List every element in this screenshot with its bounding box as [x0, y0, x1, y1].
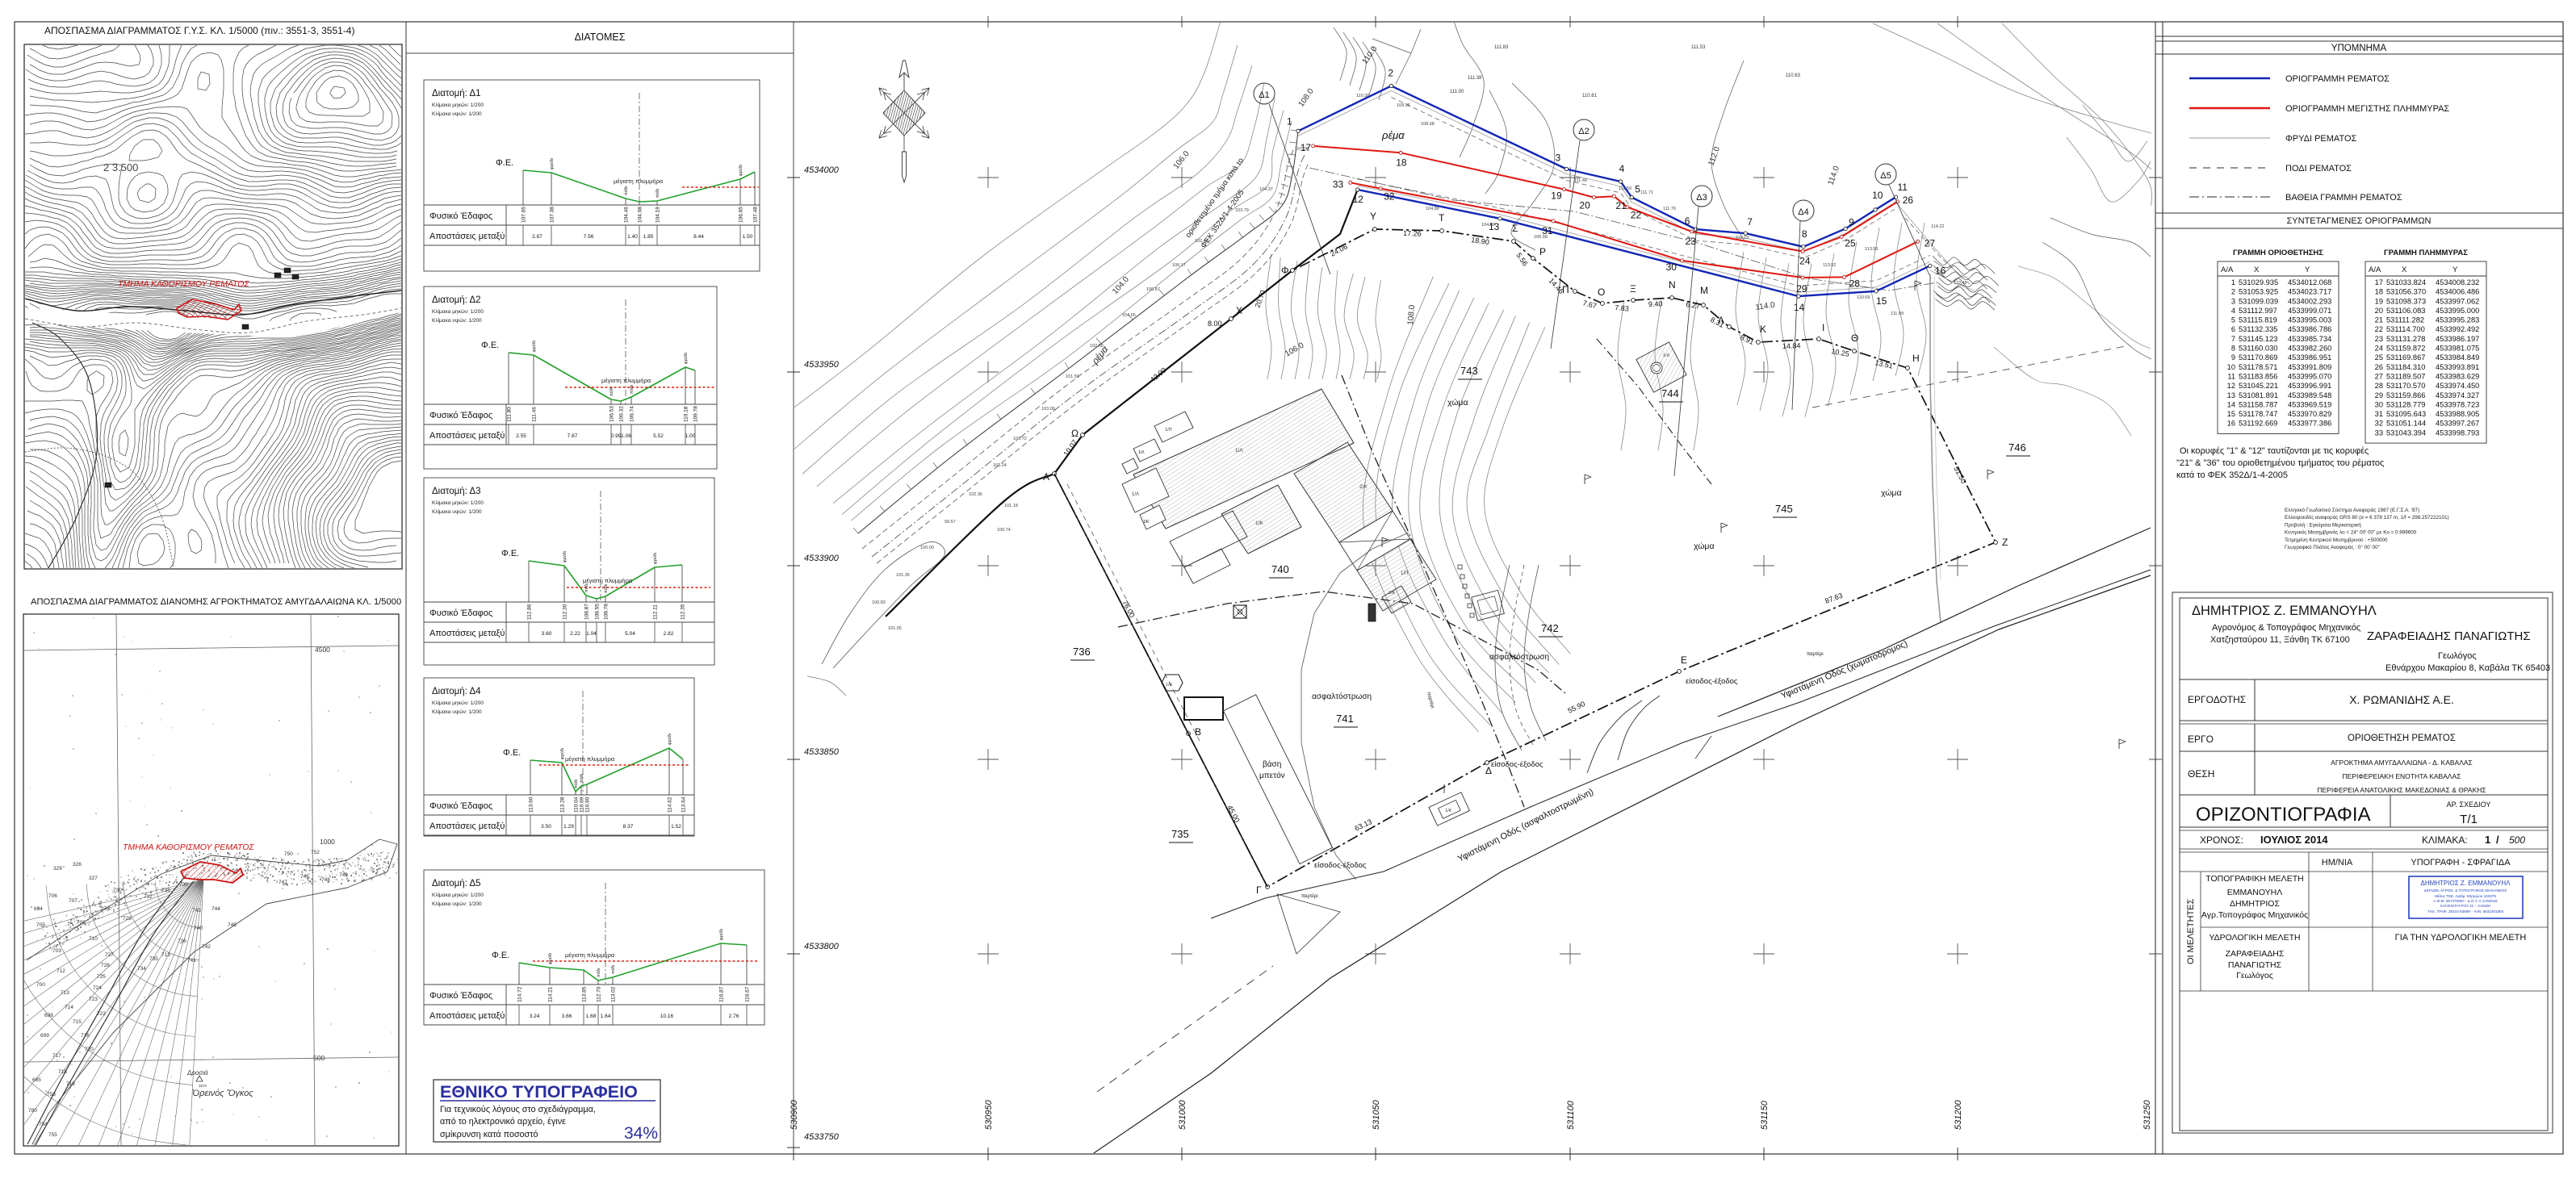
- svg-text:4533950: 4533950: [804, 360, 840, 370]
- svg-text:732: 732: [144, 894, 153, 900]
- svg-text:Κλίμακα μηκών: 1/200: Κλίμακα μηκών: 1/200: [432, 308, 484, 315]
- svg-text:1/Κ: 1/Κ: [1389, 591, 1396, 596]
- svg-text:ΓΙΑ ΤΗΝ ΥΔΡΟΛΟΓΙΚΗ ΜΕΛΕΤΗ: ΓΙΑ ΤΗΝ ΥΔΡΟΛΟΓΙΚΗ ΜΕΛΕΤΗ: [2395, 933, 2527, 943]
- svg-text:107.38: 107.38: [550, 207, 555, 223]
- svg-text:1.52: 1.52: [671, 824, 681, 830]
- svg-text:9: 9: [2231, 353, 2235, 362]
- svg-text:329: 329: [53, 866, 62, 872]
- svg-text:531183.856: 531183.856: [2239, 373, 2277, 381]
- svg-text:4533995.003: 4533995.003: [2288, 316, 2331, 324]
- svg-text:111.71: 111.71: [1640, 190, 1653, 195]
- svg-text:4: 4: [1619, 163, 1625, 174]
- svg-text:706: 706: [48, 893, 57, 899]
- svg-text:684: 684: [34, 906, 43, 912]
- svg-text:21: 21: [1615, 200, 1627, 211]
- svg-text:24: 24: [1799, 256, 1811, 267]
- svg-text:4533988.905: 4533988.905: [2436, 410, 2479, 418]
- svg-text:112.15: 112.15: [1736, 236, 1749, 240]
- svg-text:110.90: 110.90: [585, 796, 591, 813]
- svg-text:28: 28: [2375, 382, 2383, 390]
- svg-text:105.58: 105.58: [1534, 235, 1548, 240]
- svg-text:106.17: 106.17: [1172, 263, 1186, 268]
- svg-text:531114.700: 531114.700: [2386, 325, 2425, 333]
- svg-text:Αγρονόμος & Τοπογράφος Μηχανικ: Αγρονόμος & Τοπογράφος Μηχανικός: [2212, 623, 2360, 633]
- svg-text:531178.747: 531178.747: [2239, 410, 2277, 418]
- svg-text:713: 713: [161, 952, 170, 958]
- svg-text:2/Κ: 2/Κ: [1359, 484, 1368, 490]
- svg-text:Φυσικό Έδαφος: Φυσικό Έδαφος: [429, 211, 492, 221]
- svg-text:500: 500: [2509, 834, 2525, 846]
- svg-text:720: 720: [85, 1047, 94, 1052]
- svg-text:σμίκρυνση κατά ποσοστό: σμίκρυνση κατά ποσοστό: [440, 1130, 538, 1139]
- svg-text:531106.083: 531106.083: [2386, 307, 2425, 315]
- svg-text:φρύδι: φρύδι: [562, 550, 568, 562]
- svg-text:20: 20: [2375, 307, 2383, 315]
- svg-text:Ελληνικό Γεωδαιτικό Σύστημα Αν: Ελληνικό Γεωδαιτικό Σύστημα Αναφοράς 198…: [2285, 507, 2419, 513]
- svg-text:είσοδος-έξοδος: είσοδος-έξοδος: [1314, 861, 1367, 870]
- svg-text:3.50: 3.50: [541, 824, 551, 830]
- svg-text:4533974.450: 4533974.450: [2436, 382, 2479, 390]
- svg-text:2: 2: [1388, 67, 1393, 78]
- svg-text:Γ: Γ: [1256, 884, 1262, 896]
- svg-text:23: 23: [1686, 236, 1697, 247]
- svg-text:4533800: 4533800: [804, 942, 840, 951]
- svg-text:531115.819: 531115.819: [2239, 316, 2277, 324]
- svg-text:Κλίμακα μηκών: 1/200: Κλίμακα μηκών: 1/200: [432, 500, 484, 506]
- svg-text:παρτέρι: παρτέρι: [1301, 893, 1318, 899]
- svg-text:531029.935: 531029.935: [2239, 278, 2278, 286]
- svg-text:Κλίμακα υψών: 1/200: Κλίμακα υψών: 1/200: [432, 508, 482, 515]
- svg-text:πόδι: πόδι: [573, 779, 579, 788]
- svg-text:4534008.232: 4534008.232: [2436, 278, 2479, 286]
- svg-text:24: 24: [2375, 345, 2383, 353]
- svg-text:110.04: 110.04: [574, 796, 580, 813]
- svg-text:ΟΙ ΜΕΛΕΤΗΤΕΣ: ΟΙ ΜΕΛΕΤΗΤΕΣ: [2186, 898, 2196, 964]
- svg-text:ΖΑΡΑΦΕΙΑΔΗΣ: ΖΑΡΑΦΕΙΑΔΗΣ: [2226, 949, 2285, 959]
- svg-text:Γεωλόγος: Γεωλόγος: [2236, 971, 2273, 980]
- svg-text:5.04: 5.04: [625, 631, 635, 637]
- svg-text:1/Κ: 1/Κ: [1143, 520, 1150, 525]
- svg-text:4533989.548: 4533989.548: [2288, 391, 2331, 399]
- svg-text:/: /: [2496, 834, 2499, 846]
- svg-text:Φ.Ε.: Φ.Ε.: [503, 748, 521, 758]
- svg-text:4: 4: [2231, 307, 2235, 315]
- svg-text:4533997.267: 4533997.267: [2436, 420, 2479, 428]
- svg-text:4533974.327: 4533974.327: [2436, 391, 2479, 399]
- svg-text:1.29: 1.29: [563, 824, 574, 830]
- svg-text:11: 11: [1898, 182, 1908, 193]
- svg-text:Διατομή: Δ4: Διατομή: Δ4: [432, 687, 481, 696]
- svg-text:Ξ: Ξ: [1630, 283, 1636, 295]
- svg-text:ΔΙΑΤΟΜΕΣ: ΔΙΑΤΟΜΕΣ: [575, 31, 626, 43]
- svg-text:107.48: 107.48: [753, 207, 759, 223]
- svg-text:111.46: 111.46: [1574, 178, 1587, 183]
- svg-text:φρύδι: φρύδι: [718, 928, 724, 940]
- svg-text:μέγιστη πλυμμήρα: μέγιστη πλυμμήρα: [601, 377, 651, 384]
- svg-text:4500: 4500: [315, 646, 330, 654]
- svg-text:Αποστάσεις μεταξύ: Αποστάσεις μεταξύ: [429, 232, 505, 241]
- svg-text:112.30: 112.30: [563, 604, 568, 620]
- svg-text:5: 5: [2231, 316, 2235, 324]
- svg-text:Χ: Χ: [1236, 305, 1242, 316]
- svg-text:101.36: 101.36: [896, 573, 910, 578]
- svg-text:χώμα: χώμα: [1881, 488, 1902, 498]
- svg-text:327: 327: [89, 876, 98, 881]
- svg-text:Α.Φ.Μ. 067370957 - Δ.Ο.Υ. Α ΞΑ: Α.Φ.Μ. 067370957 - Δ.Ο.Υ. Α ΞΑΝΘΗΣ: [2433, 899, 2498, 903]
- svg-text:15: 15: [2227, 410, 2235, 418]
- svg-text:13: 13: [2227, 391, 2235, 399]
- svg-text:είσοδος-έξοδος: είσοδος-έξοδος: [1491, 760, 1544, 769]
- svg-text:3: 3: [2231, 297, 2235, 305]
- svg-text:4533986.951: 4533986.951: [2288, 353, 2331, 362]
- svg-text:531000: 531000: [1178, 1099, 1187, 1130]
- svg-text:14: 14: [2227, 400, 2235, 408]
- svg-text:33: 33: [1333, 178, 1344, 190]
- svg-text:4533984.849: 4533984.849: [2436, 353, 2479, 362]
- svg-text:728: 728: [123, 916, 132, 922]
- svg-text:716: 716: [81, 1033, 90, 1039]
- svg-text:29: 29: [1796, 283, 1807, 295]
- svg-text:ρέμα: ρέμα: [1381, 129, 1405, 141]
- svg-text:4534000: 4534000: [804, 165, 840, 175]
- svg-text:708: 708: [77, 920, 86, 926]
- svg-text:116.67: 116.67: [745, 986, 751, 1002]
- svg-text:531100: 531100: [1566, 1100, 1576, 1130]
- svg-text:102.48: 102.48: [1195, 239, 1208, 244]
- svg-text:4533992.492: 4533992.492: [2436, 325, 2479, 333]
- svg-text:Αποστάσεις μεταξύ: Αποστάσεις μεταξύ: [429, 629, 505, 638]
- svg-text:1/Λ: 1/Λ: [1138, 450, 1145, 455]
- svg-text:8.37: 8.37: [623, 824, 634, 830]
- svg-text:531033.824: 531033.824: [2386, 278, 2426, 286]
- svg-text:από το ηλεκτρονικό αρχείο, έγι: από το ηλεκτρονικό αρχείο, έγινε: [440, 1117, 566, 1127]
- svg-text:531170.570: 531170.570: [2386, 382, 2425, 390]
- svg-text:754: 754: [39, 1122, 48, 1127]
- svg-text:531095.643: 531095.643: [2386, 410, 2426, 418]
- svg-text:740: 740: [1271, 563, 1289, 575]
- svg-text:531178.571: 531178.571: [2239, 363, 2277, 371]
- svg-text:1.85: 1.85: [643, 234, 654, 240]
- svg-text:πόδι: πόδι: [579, 773, 584, 783]
- svg-text:ΤΟΠΟΓΡΑΦΙΚΗ ΜΕΛΕΤΗ: ΤΟΠΟΓΡΑΦΙΚΗ ΜΕΛΕΤΗ: [2205, 874, 2303, 884]
- svg-text:Κ: Κ: [1760, 324, 1766, 335]
- svg-text:99.57: 99.57: [945, 520, 956, 525]
- svg-text:Γεωγραφικό Πλάτος Αναφοράς : 0: Γεωγραφικό Πλάτος Αναφοράς : 0° 00' 00": [2285, 544, 2380, 550]
- svg-text:1/Π: 1/Π: [1165, 428, 1172, 433]
- svg-text:πόδι: πόδι: [603, 583, 609, 593]
- svg-text:116.87: 116.87: [719, 986, 725, 1002]
- svg-text:700: 700: [36, 982, 45, 988]
- svg-text:Σ: Σ: [1512, 223, 1518, 234]
- svg-text:705: 705: [36, 922, 45, 928]
- svg-text:531170.869: 531170.869: [2239, 353, 2277, 362]
- svg-text:8: 8: [1802, 228, 1807, 240]
- svg-text:Οι κορυφές "1" & "12" ταυτίζ: Οι κορυφές "1" & "12" ταυτίζονται με τις…: [2180, 446, 2369, 456]
- svg-text:ΔΗΜΗΤΡΙΟΣ Ζ. ΕΜΜΑΝΟΥΗΛ: ΔΗΜΗΤΡΙΟΣ Ζ. ΕΜΜΑΝΟΥΗΛ: [2192, 604, 2377, 618]
- svg-text:Αποστάσεις μεταξύ: Αποστάσεις μεταξύ: [429, 822, 505, 831]
- svg-text:531131.278: 531131.278: [2386, 335, 2425, 343]
- svg-text:ΟΡΙΟΓΡΑΜΜΗ ΡΕΜΑΤΟΣ: ΟΡΙΟΓΡΑΜΜΗ ΡΕΜΑΤΟΣ: [2285, 74, 2390, 84]
- svg-text:ΗΜ/ΝΙΑ: ΗΜ/ΝΙΑ: [2322, 858, 2353, 868]
- svg-text:Ζ: Ζ: [2002, 537, 2008, 548]
- svg-text:Τ/1: Τ/1: [2460, 813, 2478, 826]
- svg-text:5.52: 5.52: [653, 433, 664, 439]
- svg-text:27: 27: [2375, 373, 2383, 381]
- svg-text:4533750: 4533750: [804, 1132, 840, 1142]
- svg-text:272: 272: [101, 906, 110, 912]
- svg-text:Δροσιά: Δροσιά: [186, 1069, 208, 1077]
- svg-text:Ω: Ω: [1071, 428, 1079, 439]
- svg-text:743: 743: [192, 908, 201, 914]
- svg-text:114.72: 114.72: [517, 986, 523, 1002]
- svg-text:Εθνάρχου Μακαρίου 8, Καβάλα ΤΚ: Εθνάρχου Μακαρίου 8, Καβάλα ΤΚ 65403: [2385, 663, 2550, 673]
- svg-text:1/Π: 1/Π: [1401, 571, 1408, 576]
- svg-text:1/Λ: 1/Λ: [1663, 353, 1670, 358]
- svg-text:ΕΡΓΟΔΟΤΗΣ: ΕΡΓΟΔΟΤΗΣ: [2188, 694, 2246, 705]
- svg-text:17: 17: [2375, 278, 2383, 286]
- svg-text:1000: 1000: [320, 838, 335, 846]
- svg-text:19: 19: [2375, 297, 2383, 305]
- svg-text:Κλίμακα μηκών: 1/200: Κλίμακα μηκών: 1/200: [432, 102, 484, 108]
- svg-text:735: 735: [149, 956, 158, 962]
- svg-text:4534023.717: 4534023.717: [2288, 288, 2331, 296]
- svg-text:ΘΕΣΗ: ΘΕΣΗ: [2188, 768, 2214, 780]
- svg-text:744: 744: [1661, 387, 1679, 399]
- svg-text:749: 749: [339, 872, 348, 878]
- svg-text:Χατζησταύρου 11, Ξάνθη Τ: Χατζησταύρου 11, Ξάνθη ΤΚ 67100: [2210, 635, 2350, 645]
- svg-text:μέγιστη πλυμμήρα: μέγιστη πλυμμήρα: [565, 951, 615, 959]
- svg-text:8.00: 8.00: [1208, 320, 1222, 328]
- svg-text:30: 30: [1666, 261, 1678, 273]
- svg-text:104.80: 104.80: [1481, 223, 1495, 228]
- svg-text:113.64: 113.64: [681, 796, 687, 813]
- svg-text:725: 725: [97, 974, 106, 980]
- svg-text:Δ1: Δ1: [1259, 90, 1269, 100]
- svg-text:10: 10: [1872, 190, 1883, 201]
- svg-text:4533986.197: 4533986.197: [2436, 335, 2479, 343]
- svg-text:7.56: 7.56: [584, 234, 594, 240]
- svg-text:Κλίμακα υψών: 1/200: Κλίμακα υψών: 1/200: [432, 111, 482, 117]
- svg-text:326: 326: [73, 862, 82, 868]
- svg-text:ΤΗΛ. ΓΡΑΦ. 25410 83698- - ΚΙΝ: ΤΗΛ. ΓΡΑΦ. 25410 83698- - ΚΙΝ. 693230185…: [2427, 909, 2504, 914]
- svg-text:718: 718: [58, 1069, 67, 1075]
- svg-text:ΦΡΥΔΙ ΡΕΜΑΤΟΣ: ΦΡΥΔΙ ΡΕΜΑΤΟΣ: [2285, 134, 2357, 144]
- svg-text:32: 32: [1384, 191, 1395, 203]
- svg-text:748: 748: [321, 877, 330, 883]
- svg-text:ΧΑΤΖΗΣΤΑΥΡΟΥ 11 – ΞΑΝΘΗ: ΧΑΤΖΗΣΤΑΥΡΟΥ 11 – ΞΑΝΘΗ: [2440, 904, 2491, 908]
- svg-text:4533991.809: 4533991.809: [2288, 363, 2331, 371]
- svg-text:20: 20: [1579, 200, 1590, 211]
- svg-text:ΖΑΡΑΦΕΙΑΔΗΣ ΠΑΝΑΓΙΩΤΗΣ: ΖΑΡΑΦΕΙΑΔΗΣ ΠΑΝΑΓΙΩΤΗΣ: [2367, 629, 2531, 643]
- svg-text:531098.373: 531098.373: [2386, 297, 2426, 305]
- svg-text:4534002.293: 4534002.293: [2288, 297, 2331, 305]
- svg-text:112.35: 112.35: [681, 604, 686, 620]
- svg-text:Γεωλόγος: Γεωλόγος: [2438, 651, 2477, 661]
- svg-text:717: 717: [52, 1053, 61, 1059]
- svg-text:4534012.068: 4534012.068: [2288, 278, 2331, 286]
- svg-text:Διατομή: Δ3: Διατομή: Δ3: [432, 487, 481, 496]
- svg-text:104.19: 104.19: [656, 207, 661, 223]
- svg-text:109.36: 109.36: [1397, 103, 1410, 108]
- svg-text:753: 753: [47, 1092, 56, 1097]
- svg-text:780: 780: [28, 1108, 37, 1114]
- svg-text:ΕΡΓΟ: ΕΡΓΟ: [2188, 734, 2214, 745]
- svg-text:Ελλειψοειδές αναφοράς GRS 80 (: Ελλειψοειδές αναφοράς GRS 80 (α = 6 378 …: [2285, 514, 2449, 521]
- svg-text:4533995.070: 4533995.070: [2288, 373, 2331, 381]
- svg-text:ΓΡΑΜΜΗ ΠΛΗΜΜΥΡΑΣ: ΓΡΑΜΜΗ ΠΛΗΜΜΥΡΑΣ: [2384, 249, 2468, 257]
- svg-text:531050: 531050: [1372, 1099, 1381, 1130]
- svg-text:531159.866: 531159.866: [2386, 391, 2425, 399]
- svg-text:4533995.000: 4533995.000: [2436, 307, 2479, 315]
- svg-text:27: 27: [1925, 237, 1936, 249]
- svg-text:Ν: Ν: [1669, 279, 1676, 291]
- svg-text:110.48: 110.48: [1954, 281, 1967, 286]
- svg-text:4533993.891: 4533993.891: [2436, 363, 2479, 371]
- svg-text:736: 736: [1073, 646, 1091, 658]
- svg-text:Αποστάσεις μεταξύ: Αποστάσεις μεταξύ: [429, 431, 505, 441]
- svg-text:πόδι: πόδι: [655, 188, 660, 198]
- svg-text:Φυσικό Έδαφος: Φυσικό Έδαφος: [429, 608, 492, 618]
- svg-text:X: X: [2254, 265, 2260, 274]
- svg-text:110.81: 110.81: [1582, 94, 1598, 98]
- svg-text:4533900: 4533900: [804, 554, 840, 563]
- svg-text:685: 685: [32, 1077, 41, 1083]
- svg-text:0.99: 0.99: [611, 433, 622, 439]
- svg-text:741: 741: [1336, 713, 1354, 725]
- svg-text:29: 29: [2375, 391, 2383, 399]
- svg-text:106.74: 106.74: [630, 406, 635, 422]
- svg-text:ΔΗΜΗΤΡΙΟΣ: ΔΗΜΗΤΡΙΟΣ: [2230, 899, 2280, 909]
- svg-text:742: 742: [1541, 622, 1559, 634]
- svg-text:4533982.260: 4533982.260: [2288, 345, 2331, 353]
- svg-text:113.56: 113.56: [1865, 247, 1878, 252]
- svg-text:Για τεχνικούς λόγους στο σ: Για τεχνικούς λόγους στο σχεδιάγραμμα,: [440, 1105, 596, 1114]
- svg-text:Δ5: Δ5: [1880, 171, 1891, 181]
- svg-text:Δ4: Δ4: [1798, 207, 1808, 217]
- svg-text:A/A: A/A: [2221, 265, 2234, 274]
- svg-text:745: 745: [228, 922, 237, 928]
- svg-text:Β: Β: [1195, 726, 1201, 738]
- svg-text:Φ.Ε.: Φ.Ε.: [496, 158, 513, 168]
- svg-text:Διατομή: Δ5: Διατομή: Δ5: [432, 879, 481, 888]
- svg-text:1.68: 1.68: [586, 1014, 597, 1019]
- svg-text:114.62: 114.62: [668, 796, 673, 813]
- svg-text:1.40: 1.40: [627, 234, 638, 240]
- svg-text:Φ.Ε.: Φ.Ε.: [501, 549, 519, 558]
- svg-text:108.0: 108.0: [1406, 304, 1417, 325]
- svg-text:736: 736: [178, 939, 186, 944]
- svg-text:12: 12: [1353, 194, 1364, 205]
- svg-text:26: 26: [2375, 363, 2383, 371]
- svg-text:2.87: 2.87: [532, 234, 542, 240]
- svg-text:1/Κ: 1/Κ: [1255, 521, 1263, 526]
- svg-text:ΑΡ. ΣΧΕΔΙΟΥ: ΑΡ. ΣΧΕΔΙΟΥ: [2447, 801, 2491, 809]
- svg-text:101.05: 101.05: [888, 626, 902, 631]
- svg-text:111.09: 111.09: [1891, 311, 1904, 316]
- svg-text:4533997.062: 4533997.062: [2436, 297, 2479, 305]
- svg-text:Ι: Ι: [1822, 322, 1824, 333]
- svg-text:χώμα: χώμα: [1694, 541, 1715, 551]
- svg-text:9: 9: [1849, 216, 1854, 228]
- svg-text:107.38: 107.38: [1295, 147, 1309, 152]
- svg-text:107.65: 107.65: [521, 207, 527, 223]
- svg-text:699: 699: [40, 1033, 49, 1039]
- svg-text:21: 21: [2375, 316, 2383, 324]
- svg-text:104.08: 104.08: [638, 207, 643, 223]
- svg-text:25: 25: [1845, 237, 1856, 249]
- svg-text:531128.779: 531128.779: [2386, 400, 2425, 408]
- svg-text:1.00: 1.00: [685, 433, 696, 439]
- svg-text:1: 1: [2231, 278, 2235, 286]
- svg-text:2.76: 2.76: [729, 1014, 739, 1019]
- svg-text:Κλίμακα υψών: 1/200: Κλίμακα υψών: 1/200: [432, 709, 482, 715]
- svg-text:100.74: 100.74: [997, 528, 1011, 533]
- svg-text:530950: 530950: [984, 1099, 994, 1130]
- svg-text:ΠΕΡΙΦΕΡΕΙΑ ΑΝΑΤΟΛΙΚΗΣ ΜΑΚΕΔΟΝΙ: ΠΕΡΙΦΕΡΕΙΑ ΑΝΑΤΟΛΙΚΗΣ ΜΑΚΕΔΟΝΙΑΣ & ΘΡΑΚΗ…: [2317, 786, 2486, 794]
- svg-text:4533986.786: 4533986.786: [2288, 325, 2331, 333]
- svg-text:4533998.793: 4533998.793: [2436, 429, 2479, 437]
- svg-text:ασφαλτόστρωση: ασφαλτόστρωση: [1312, 692, 1372, 701]
- svg-text:Κλίμακα μηκών: 1/200: Κλίμακα μηκών: 1/200: [432, 700, 484, 706]
- svg-text:Ο: Ο: [1598, 286, 1605, 298]
- svg-text:703: 703: [52, 948, 61, 954]
- svg-text:ΔΙΠΛΩΜ. ΑΓΡΟΝ. & ΤΟΠΟΓΡΑΦΟΣ ΜΗ: ΔΙΠΛΩΜ. ΑΓΡΟΝ. & ΤΟΠΟΓΡΑΦΟΣ ΜΗΧΑΝΙΚΟΣ: [2424, 888, 2507, 893]
- svg-text:730: 730: [113, 888, 122, 893]
- svg-text:1/Κ: 1/Κ: [1445, 809, 1452, 813]
- svg-text:4533969.519: 4533969.519: [2288, 400, 2331, 408]
- svg-text:είσοδος-έξοδος: είσοδος-έξοδος: [1686, 677, 1738, 686]
- svg-text:7.83: 7.83: [1615, 303, 1629, 312]
- svg-text:726: 726: [101, 963, 110, 968]
- svg-text:2.82: 2.82: [664, 631, 674, 637]
- svg-text:ΑΠΟΣΠΑΣΜΑ ΔΙΑΓΡΑΜΜΑΤΟΣ ΔΙΑΝΟΜΗ: ΑΠΟΣΠΑΣΜΑ ΔΙΑΓΡΑΜΜΑΤΟΣ ΔΙΑΝΟΜΗΣ ΑΓΡΟΚΤΗΜ…: [31, 597, 401, 607]
- svg-text:φρύδι: φρύδι: [683, 352, 689, 364]
- svg-text:Κλίμακα μηκών: 1/200: Κλίμακα μηκών: 1/200: [432, 892, 484, 898]
- svg-text:6: 6: [1685, 215, 1690, 227]
- svg-text:ΔΗΜΗΤΡΙΟΣ Ζ. ΕΜΜΑΝΟΥΗΛ: ΔΗΜΗΤΡΙΟΣ Ζ. ΕΜΜΑΝΟΥΗΛ: [2421, 880, 2511, 887]
- svg-text:ΟΡΙΟΘΕΤΗΣΗ ΡΕΜΑΤΟΣ: ΟΡΙΟΘΕΤΗΣΗ ΡΕΜΑΤΟΣ: [2348, 734, 2456, 743]
- svg-text:X: X: [2402, 265, 2407, 274]
- svg-text:104.88: 104.88: [1426, 207, 1439, 211]
- svg-text:531112.997: 531112.997: [2239, 307, 2277, 315]
- svg-text:10: 10: [2227, 363, 2235, 371]
- svg-text:104.37: 104.37: [1259, 187, 1273, 192]
- svg-text:φρύδι: φρύδι: [531, 340, 537, 352]
- svg-text:Φυσικό Έδαφος: Φυσικό Έδαφος: [429, 411, 492, 420]
- svg-text:106.53: 106.53: [609, 406, 615, 422]
- svg-text:25: 25: [2375, 353, 2383, 362]
- svg-text:17.26: 17.26: [1403, 229, 1422, 238]
- svg-text:531150: 531150: [1760, 1100, 1770, 1130]
- svg-text:ΤΜΗΜΑ ΚΑΘΟΡΙΣΜΟΥ ΡΕΜΑΤΟΣ: ΤΜΗΜΑ ΚΑΘΟΡΙΣΜΟΥ ΡΕΜΑΤΟΣ: [123, 842, 254, 852]
- svg-text:531045.221: 531045.221: [2239, 382, 2278, 390]
- svg-text:531099.039: 531099.039: [2239, 297, 2278, 305]
- svg-text:755: 755: [48, 1132, 57, 1138]
- svg-text:A/A: A/A: [2369, 265, 2381, 274]
- svg-text:4533977.386: 4533977.386: [2288, 420, 2331, 428]
- svg-text:114.22: 114.22: [1931, 224, 1944, 229]
- svg-text:Κλίμακα υψών: 1/200: Κλίμακα υψών: 1/200: [432, 901, 482, 907]
- svg-text:531184.310: 531184.310: [2386, 363, 2425, 371]
- svg-text:Φυσικό Έδαφος: Φυσικό Έδαφος: [429, 991, 492, 1001]
- svg-text:108.87: 108.87: [584, 604, 590, 620]
- svg-text:Φ.Ε.: Φ.Ε.: [492, 951, 509, 960]
- svg-text:103.79: 103.79: [1235, 208, 1249, 213]
- svg-text:745: 745: [1775, 503, 1793, 515]
- svg-text:531250: 531250: [2142, 1099, 2152, 1130]
- svg-text:Αγρ.Τοπογράφος Μηχανικός: Αγρ.Τοπογράφος Μηχανικός: [2201, 910, 2308, 920]
- svg-text:16: 16: [1935, 265, 1946, 276]
